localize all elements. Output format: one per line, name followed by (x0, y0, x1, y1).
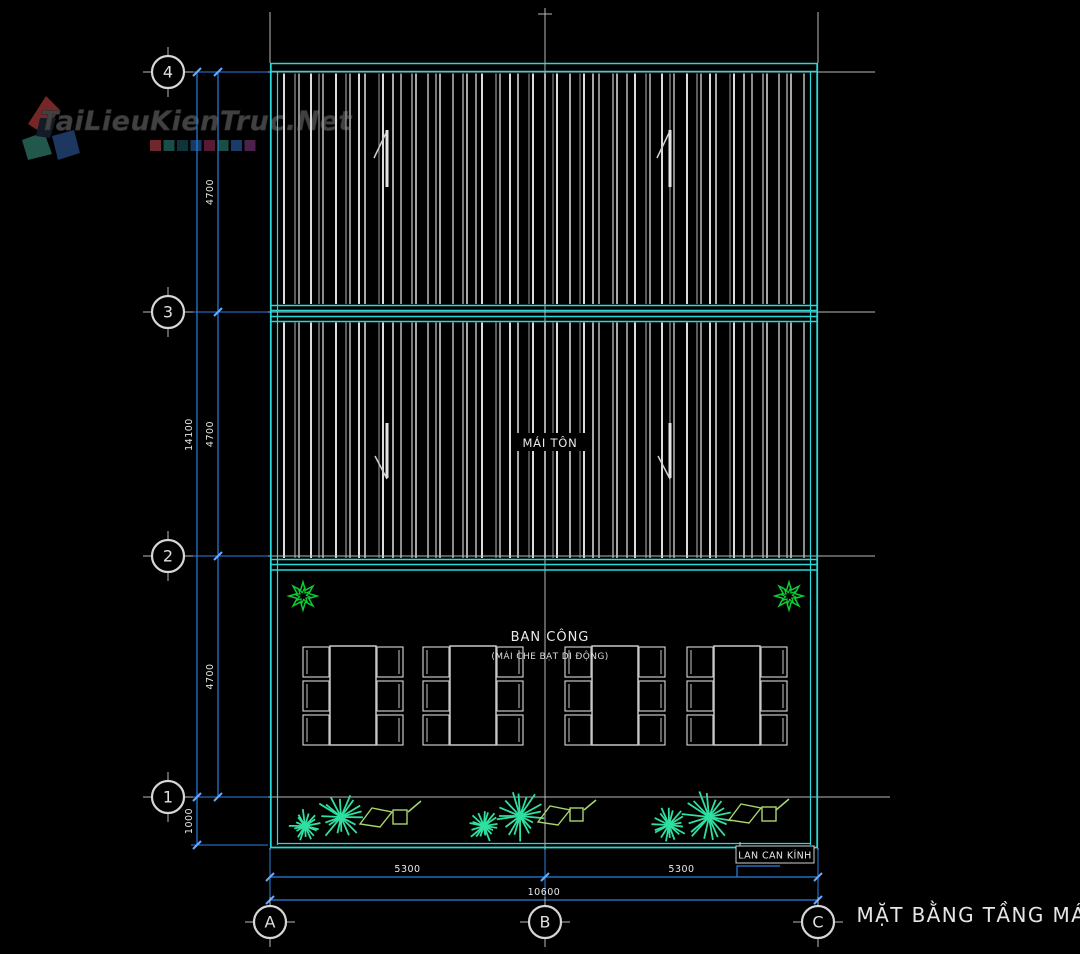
planter-slash (776, 799, 789, 810)
planter-parallelogram (729, 804, 761, 823)
railing-callout: LAN CAN KÍNH (736, 842, 814, 877)
railing-label: LAN CAN KÍNH (738, 850, 811, 862)
flower-plant (289, 582, 317, 610)
planter-parallelogram (360, 808, 392, 827)
watermark-square (191, 140, 202, 151)
palm-plant-frond (321, 816, 341, 817)
planter-square (762, 807, 776, 821)
flower-plant-inner (781, 588, 797, 604)
planter-slash (408, 801, 421, 812)
dim-value-bottom-segment: 5300 (668, 864, 694, 875)
watermark-color-squares (150, 140, 256, 151)
floor-plan-canvas: TaiLieuKienTruc.Net MÁI TÔN BAN CÔNG (MÁ… (0, 0, 1080, 954)
grid-bubble-label: 4 (163, 63, 173, 82)
flower-plant (775, 582, 803, 610)
balcony-note-label: (MÁI CHE BẠT DI ĐỘNG) (491, 650, 608, 662)
grid-bubble-label: A (265, 913, 276, 932)
grid-bubbles: 4321ABC (143, 47, 843, 947)
slope-arrow-head (658, 456, 670, 479)
watermark-square (245, 140, 256, 151)
grid-bubble-label: B (540, 913, 551, 932)
balcony-area: BAN CÔNG (MÁI CHE BẠT DI ĐỘNG) (289, 582, 803, 842)
railing-leader-blue (737, 866, 780, 877)
palm-plant-frond (326, 804, 341, 817)
watermark: TaiLieuKienTruc.Net (22, 96, 353, 160)
watermark-square (177, 140, 188, 151)
cad-roof-plan-drawing: TaiLieuKienTruc.Net MÁI TÔN BAN CÔNG (MÁ… (0, 0, 1080, 954)
dining-table (450, 646, 496, 745)
planter-slash (584, 800, 596, 810)
slope-arrow-head (374, 133, 386, 158)
watermark-square (150, 140, 161, 151)
palm-plant-frond (340, 799, 341, 817)
dim-value-bottom-total: 10600 (528, 887, 561, 898)
dim-value-left-segment: 4700 (205, 179, 216, 205)
watermark-square (164, 140, 175, 151)
roof-hatch (284, 74, 804, 559)
dim-value-bottom-segment: 5300 (394, 864, 420, 875)
dim-value-parapet: 1000 (184, 808, 195, 834)
planter-parallelogram (538, 806, 570, 825)
planter-square (570, 808, 583, 821)
drawing-title: MẶT BẰNG TẦNG MÁI (856, 901, 1080, 927)
grid-bubble-label: 3 (163, 303, 173, 322)
roof-slope-arrows (374, 130, 670, 479)
dining-table (714, 646, 760, 745)
dim-value-left-segment: 4700 (205, 421, 216, 447)
grid-bubble-label: 2 (163, 547, 173, 566)
grid-bubble-label: 1 (163, 788, 173, 807)
dim-value-left-segment: 4700 (205, 663, 216, 689)
dining-table (330, 646, 376, 745)
watermark-square (231, 140, 242, 151)
dim-value-left-total: 14100 (184, 418, 195, 451)
watermark-square (218, 140, 229, 151)
watermark-square (204, 140, 215, 151)
dimension-lines: 1410010004700470047005300530010600 (184, 68, 822, 904)
planter-square (393, 810, 407, 824)
grid-bubble-label: C (812, 913, 823, 932)
balcony-label: BAN CÔNG (511, 629, 590, 645)
watermark-brand-text: TaiLieuKienTruc.Net (40, 106, 353, 137)
roof-label: MÁI TÔN (522, 435, 577, 450)
slope-arrow-head (375, 456, 387, 479)
flower-plant-inner (295, 588, 311, 604)
